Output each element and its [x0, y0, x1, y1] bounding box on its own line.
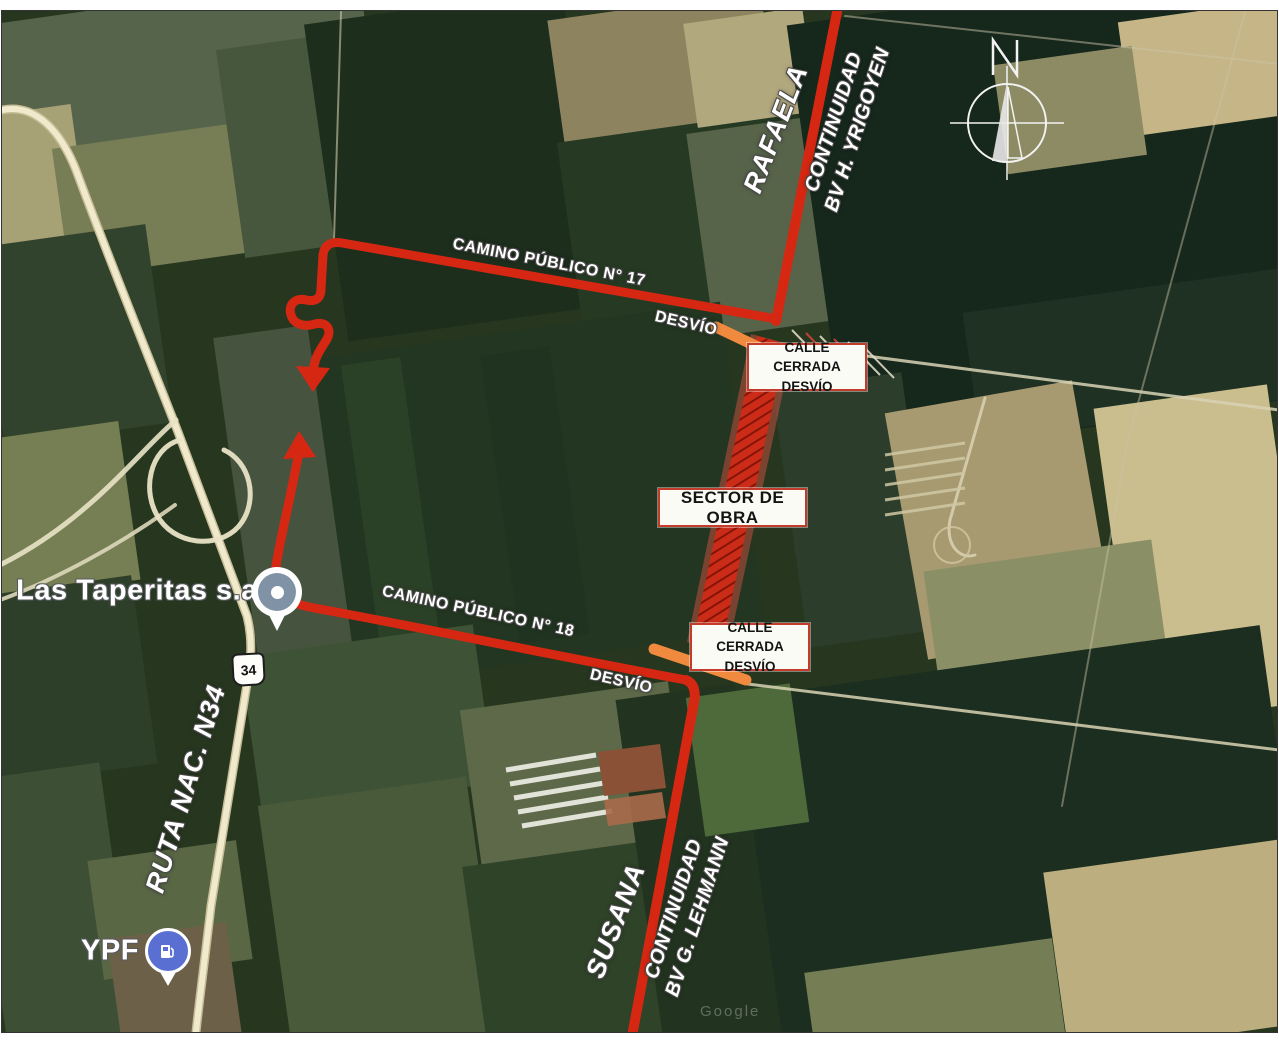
map-world: CAMINO PÚBLICO N° 17 DESVÍO CAMINO PÚBLI… [2, 11, 1277, 1032]
pin-tail [268, 613, 286, 631]
ypf-pin-tail [160, 972, 176, 986]
closed-top-line2: DESVÍO [781, 377, 832, 397]
google-watermark: Google [700, 1003, 760, 1020]
closed-bottom-line2: DESVÍO [724, 657, 775, 677]
camino18-route [275, 452, 686, 680]
satellite-map[interactable]: CAMINO PÚBLICO N° 17 DESVÍO CAMINO PÚBLI… [2, 11, 1277, 1032]
compass-needle-left [992, 87, 1006, 161]
closed-bottom-line1: CALLE CERRADA [692, 618, 808, 657]
fuel-pump-icon [158, 941, 178, 961]
highway-rn34 [2, 109, 251, 1032]
arrow-up [283, 431, 316, 459]
las-taperitas-pin[interactable] [252, 567, 302, 637]
farmstead [506, 744, 666, 826]
pin-dot [271, 586, 284, 599]
feedlot-rows [885, 443, 965, 515]
ypf-pin-disc [145, 928, 191, 974]
closed-street-box-bottom: CALLE CERRADA DESVÍO [690, 623, 810, 671]
label-las-taperitas: Las Taperitas s.a [16, 575, 258, 608]
compass-rose [950, 40, 1064, 180]
closed-street-box-top: CALLE CERRADA DESVÍO [747, 343, 867, 391]
sector-de-obra-text: SECTOR DE OBRA [660, 488, 805, 528]
ypf-gas-station-pin[interactable] [145, 928, 191, 990]
arrow-down [296, 366, 330, 392]
route-34-shield: 34 [231, 652, 266, 687]
page: CAMINO PÚBLICO N° 17 DESVÍO CAMINO PÚBLI… [0, 0, 1279, 1051]
closed-top-line1: CALLE CERRADA [749, 338, 865, 377]
compass-north-glyph [993, 40, 1017, 75]
sector-de-obra-box: SECTOR DE OBRA [658, 488, 807, 527]
label-ypf: YPF [81, 935, 139, 968]
